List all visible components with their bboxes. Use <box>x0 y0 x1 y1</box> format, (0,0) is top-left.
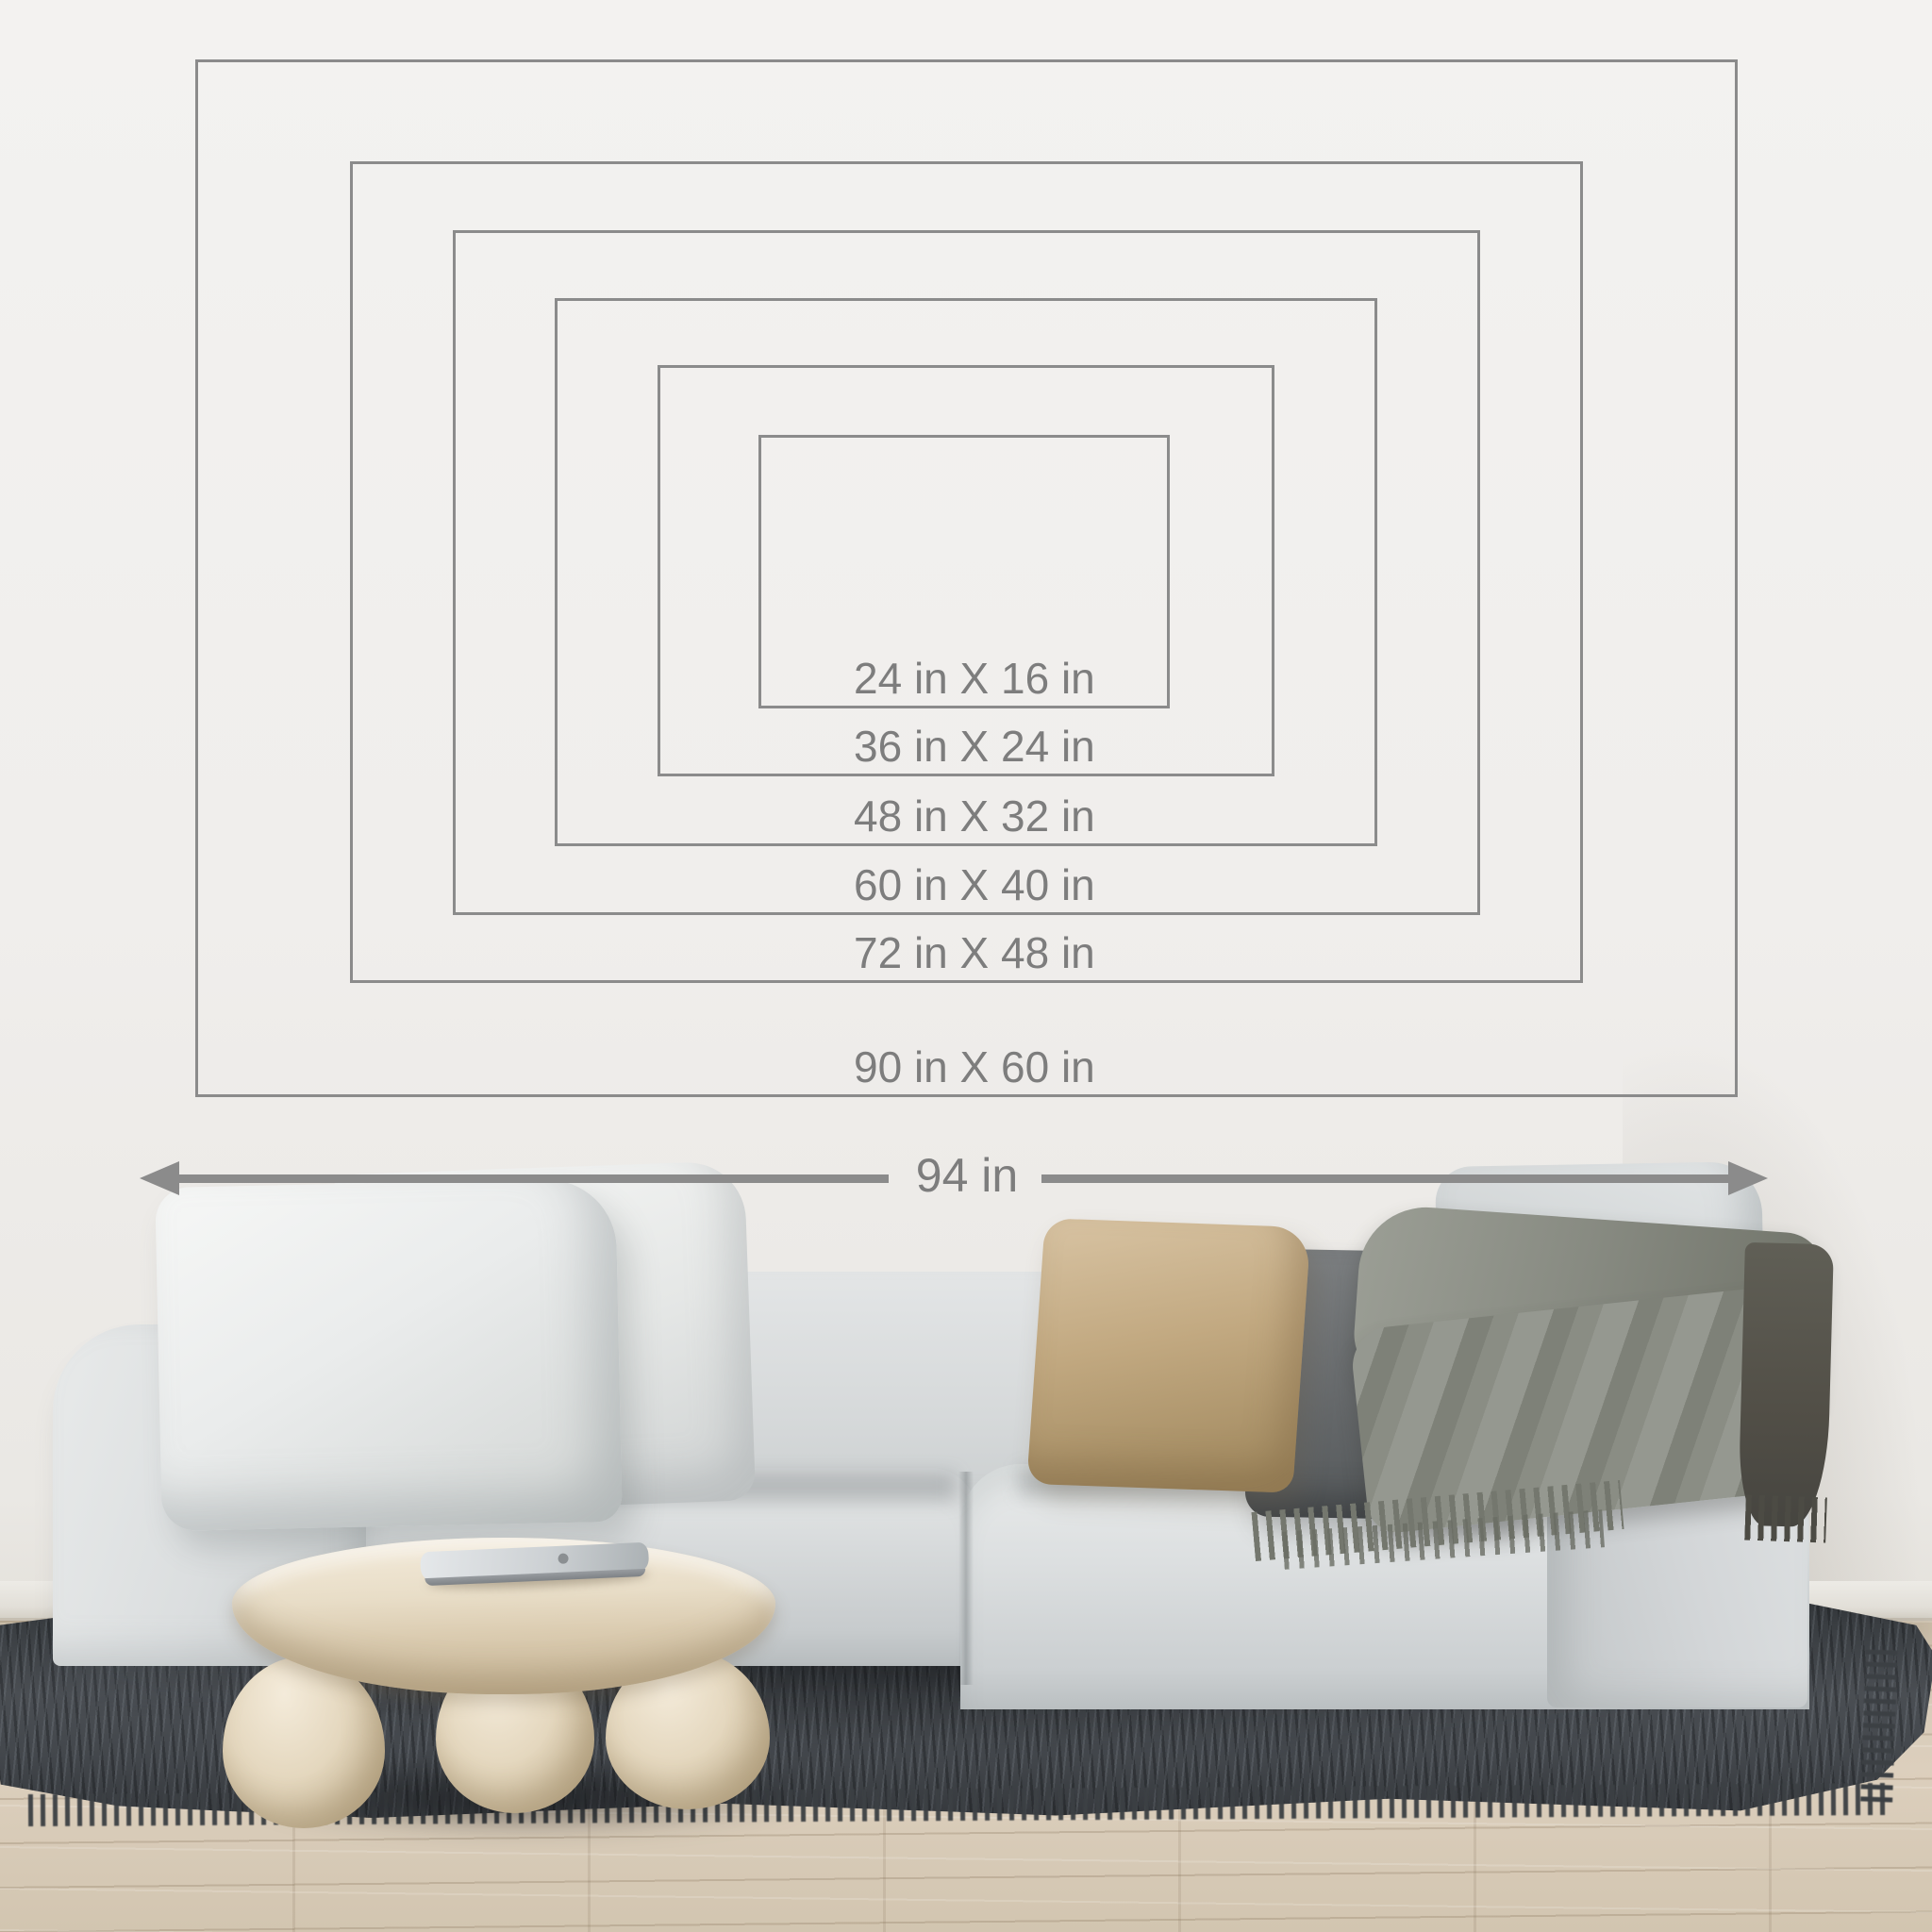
size-rect-90x60 <box>195 59 1738 1097</box>
size-guide-overlay: 24 in X 16 in36 in X 24 in48 in X 32 in6… <box>0 0 1932 1932</box>
width-arrow-line-right <box>1041 1174 1730 1183</box>
size-label-90x60: 90 in X 60 in <box>854 1041 1095 1093</box>
size-guide-mockup: 24 in X 16 in36 in X 24 in48 in X 32 in6… <box>0 0 1932 1932</box>
overall-width-label: 94 in <box>882 1147 1052 1204</box>
arrowhead-right-icon <box>1728 1161 1768 1195</box>
width-arrow-line-left <box>175 1174 889 1183</box>
arrowhead-left-icon <box>140 1161 179 1195</box>
